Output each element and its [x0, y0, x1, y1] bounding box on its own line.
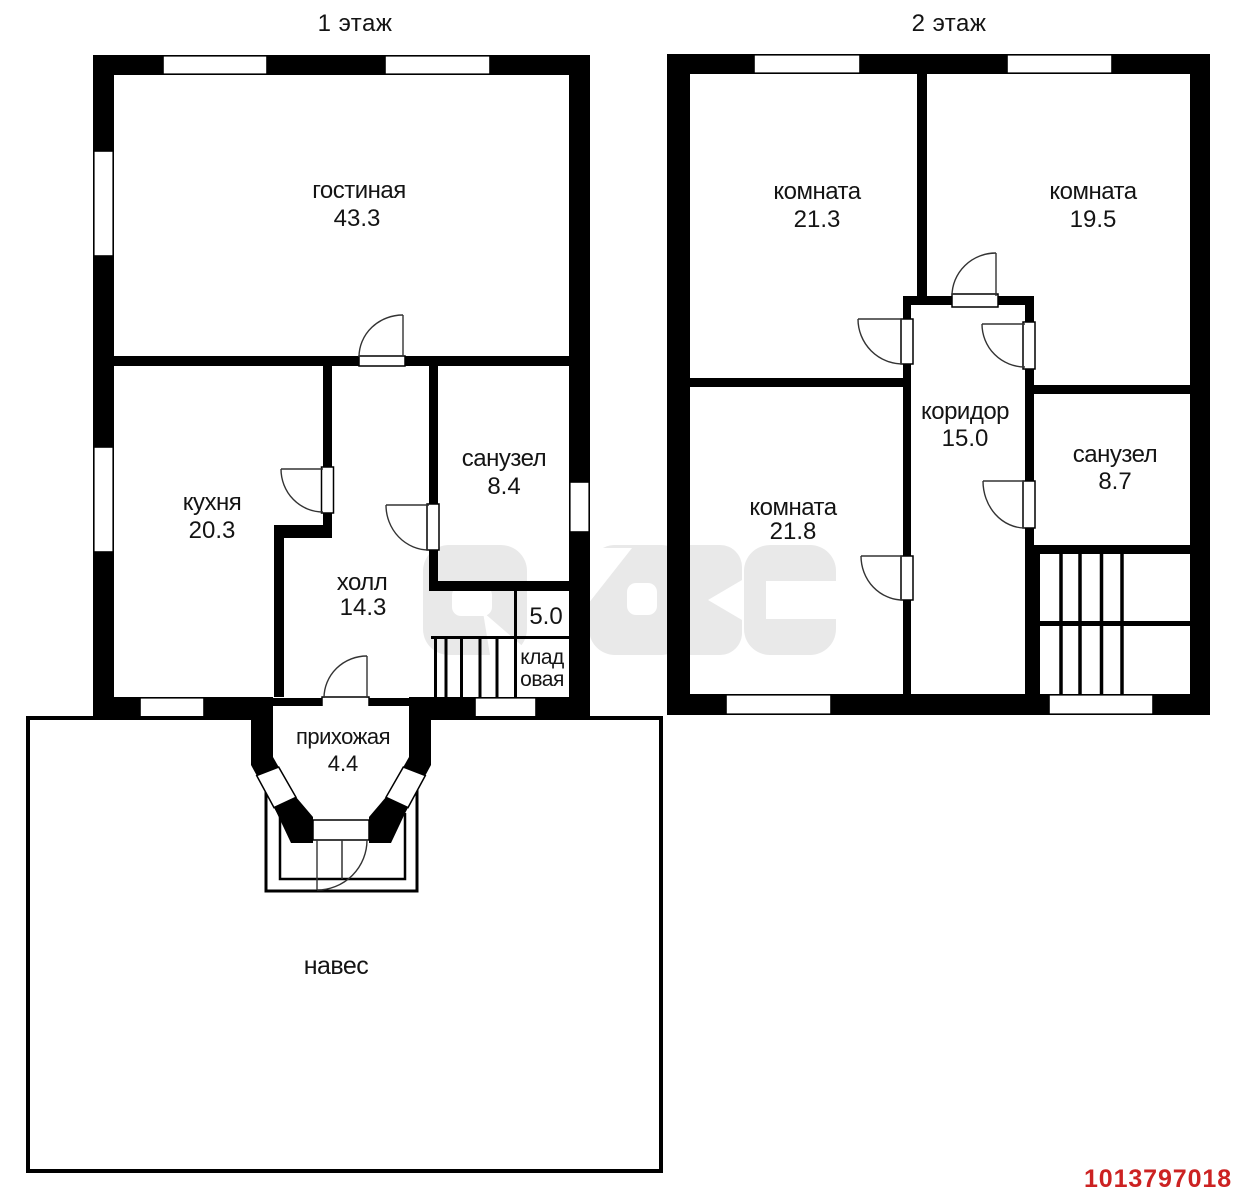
svg-text:санузел: санузел: [1073, 441, 1157, 468]
svg-text:21.8: 21.8: [770, 518, 817, 545]
svg-text:гостиная: гостиная: [312, 177, 406, 204]
svg-text:овая: овая: [520, 668, 564, 691]
svg-text:1 этаж: 1 этаж: [318, 10, 393, 37]
svg-text:21.3: 21.3: [794, 206, 841, 233]
svg-text:4.4: 4.4: [328, 751, 359, 776]
svg-text:14.3: 14.3: [340, 594, 387, 621]
svg-text:прихожая: прихожая: [296, 724, 390, 749]
svg-text:холл: холл: [337, 569, 388, 596]
svg-text:15.0: 15.0: [942, 425, 989, 452]
svg-text:клад: клад: [520, 646, 564, 669]
svg-text:навес: навес: [304, 952, 369, 980]
svg-text:20.3: 20.3: [189, 517, 236, 544]
svg-text:комната: комната: [773, 178, 861, 205]
svg-text:2 этаж: 2 этаж: [912, 10, 987, 37]
svg-text:8.7: 8.7: [1098, 468, 1131, 495]
svg-text:1013797018: 1013797018: [1084, 1165, 1232, 1193]
svg-text:19.5: 19.5: [1070, 206, 1117, 233]
svg-text:комната: комната: [1049, 178, 1137, 205]
svg-text:43.3: 43.3: [334, 205, 381, 232]
svg-text:санузел: санузел: [462, 445, 546, 472]
svg-text:комната: комната: [749, 494, 837, 521]
svg-text:коридор: коридор: [921, 398, 1009, 425]
svg-text:5.0: 5.0: [529, 603, 562, 630]
svg-text:кухня: кухня: [183, 489, 242, 516]
svg-text:8.4: 8.4: [487, 473, 520, 500]
